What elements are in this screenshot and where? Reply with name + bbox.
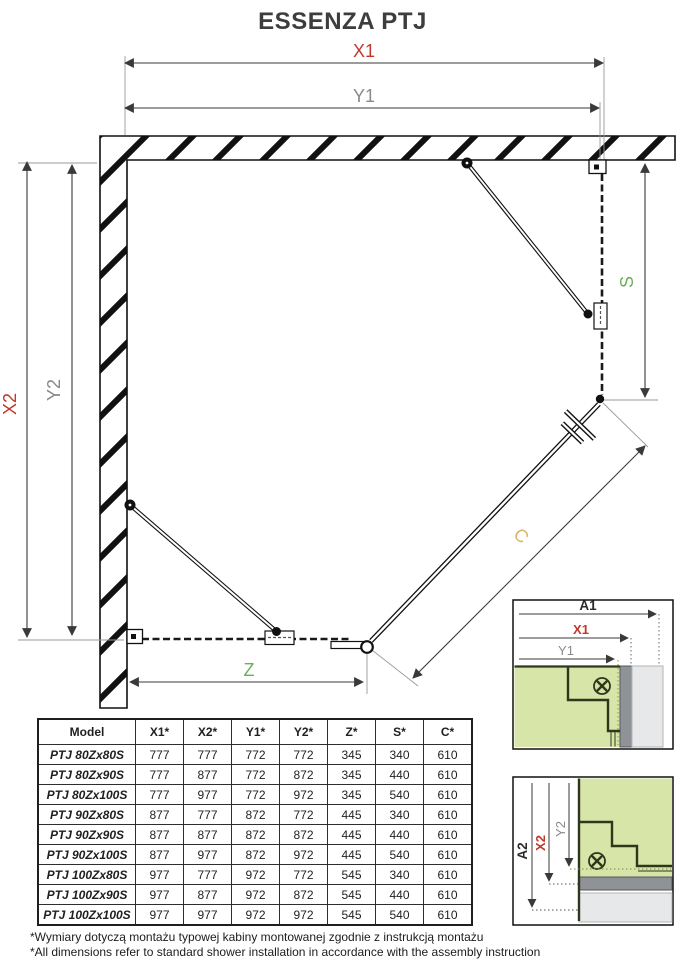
column-header-s: S*	[376, 719, 424, 745]
value-cell: 610	[424, 845, 473, 865]
value-cell: 972	[232, 865, 280, 885]
value-cell: 540	[376, 785, 424, 805]
screw-icon	[594, 678, 610, 694]
value-cell: 872	[280, 825, 328, 845]
value-cell: 772	[280, 865, 328, 885]
value-cell: 977	[136, 905, 184, 926]
value-cell: 877	[136, 825, 184, 845]
detail1-label-y1: Y1	[558, 643, 574, 658]
column-header-x1: X1*	[136, 719, 184, 745]
value-cell: 440	[376, 885, 424, 905]
table-header-row: Model X1* X2* Y1* Y2* Z* S* C*	[38, 719, 472, 745]
model-name: PTJ 90Zx100S	[38, 845, 136, 865]
value-cell: 872	[232, 825, 280, 845]
value-cell: 610	[424, 745, 473, 765]
column-header-z: Z*	[328, 719, 376, 745]
dimension-y2: Y2	[44, 165, 72, 635]
column-header-y1: Y1*	[232, 719, 280, 745]
value-cell: 777	[136, 745, 184, 765]
dimension-s: S	[617, 164, 645, 397]
value-cell: 977	[184, 845, 232, 865]
value-cell: 977	[136, 885, 184, 905]
value-cell: 777	[136, 765, 184, 785]
bottom-panel-z	[127, 630, 363, 649]
dimension-z: Z	[130, 660, 363, 682]
value-cell: 445	[328, 825, 376, 845]
value-cell: 440	[376, 765, 424, 785]
model-name: PTJ 90Zx80S	[38, 805, 136, 825]
dimension-x1: X1	[125, 41, 603, 63]
value-cell: 540	[376, 845, 424, 865]
value-cell: 445	[328, 845, 376, 865]
value-cell: 545	[328, 865, 376, 885]
table-row: PTJ 90Zx80S 877 777 872 772 445 340 610	[38, 805, 472, 825]
table-row: PTJ 90Zx90S 877 877 872 872 445 440 610	[38, 825, 472, 845]
column-header-model: Model	[38, 719, 136, 745]
brace-joint-dot	[272, 627, 281, 636]
value-cell: 972	[280, 845, 328, 865]
value-cell: 340	[376, 865, 424, 885]
table-row: PTJ 90Zx100S 877 977 872 972 445 540 610	[38, 845, 472, 865]
value-cell: 610	[424, 825, 473, 845]
value-cell: 777	[184, 805, 232, 825]
value-cell: 972	[280, 905, 328, 926]
footnote-en: *All dimensions refer to standard shower…	[30, 945, 540, 959]
value-cell: 610	[424, 765, 473, 785]
dim-label-x2: X2	[0, 393, 20, 415]
value-cell: 540	[376, 905, 424, 926]
detail-inset-vertical: A2 X2 Y2	[513, 777, 673, 925]
value-cell: 777	[136, 785, 184, 805]
detail-inset-horizontal: A1 X1 Y1	[513, 598, 673, 749]
value-cell: 345	[328, 785, 376, 805]
value-cell: 972	[232, 905, 280, 926]
value-cell: 872	[280, 885, 328, 905]
value-cell: 610	[424, 865, 473, 885]
value-cell: 877	[184, 765, 232, 785]
dim-label-c: C	[510, 524, 533, 547]
door-top-pivot	[596, 395, 604, 403]
detail2-label-x2: X2	[533, 835, 548, 851]
table-row: PTJ 80Zx90S 777 877 772 872 345 440 610	[38, 765, 472, 785]
detail1-label-a1: A1	[579, 598, 597, 613]
model-name: PTJ 80Zx100S	[38, 785, 136, 805]
screw-icon	[589, 853, 605, 869]
footnote-pl: *Wymiary dotyczą montażu typowej kabiny …	[30, 930, 483, 944]
value-cell: 877	[184, 825, 232, 845]
value-cell: 977	[184, 785, 232, 805]
dim-label-x1: X1	[353, 41, 375, 61]
model-name: PTJ 100Zx100S	[38, 905, 136, 926]
support-brace-top	[462, 158, 593, 319]
detail2-label-a2: A2	[515, 842, 530, 859]
value-cell: 440	[376, 825, 424, 845]
dim-label-s: S	[617, 276, 637, 288]
model-name: PTJ 90Zx90S	[38, 825, 136, 845]
dim-label-y2: Y2	[44, 379, 64, 401]
column-header-y2: Y2*	[280, 719, 328, 745]
detail1-label-x1: X1	[573, 622, 589, 637]
detail2-label-y2: Y2	[553, 821, 568, 837]
value-cell: 445	[328, 805, 376, 825]
value-cell: 872	[232, 805, 280, 825]
value-cell: 877	[184, 885, 232, 905]
value-cell: 545	[328, 885, 376, 905]
table-row: PTJ 80Zx80S 777 777 772 772 345 340 610	[38, 745, 472, 765]
model-name: PTJ 80Zx90S	[38, 765, 136, 785]
value-cell: 610	[424, 785, 473, 805]
table-row: PTJ 100Zx90S 977 877 972 872 545 440 610	[38, 885, 472, 905]
table-row: PTJ 100Zx100S 977 977 972 972 545 540 61…	[38, 905, 472, 926]
table-row: PTJ 80Zx100S 777 977 772 972 345 540 610	[38, 785, 472, 805]
value-cell: 872	[280, 765, 328, 785]
value-cell: 610	[424, 905, 473, 926]
model-name: PTJ 80Zx80S	[38, 745, 136, 765]
value-cell: 777	[184, 865, 232, 885]
door-bottom-pivot	[361, 641, 373, 653]
value-cell: 772	[280, 805, 328, 825]
value-cell: 972	[232, 885, 280, 905]
brace-joint-dot	[584, 310, 593, 319]
table-row: PTJ 100Zx80S 977 777 972 772 545 340 610	[38, 865, 472, 885]
support-brace-left	[125, 500, 282, 637]
value-cell: 610	[424, 805, 473, 825]
column-header-x2: X2*	[184, 719, 232, 745]
value-cell: 545	[328, 905, 376, 926]
value-cell: 340	[376, 745, 424, 765]
dimension-x2: X2	[0, 162, 27, 637]
column-header-c: C*	[424, 719, 473, 745]
value-cell: 977	[136, 865, 184, 885]
value-cell: 772	[280, 745, 328, 765]
value-cell: 772	[232, 785, 280, 805]
dimension-sheet: ESSENZA PTJ	[0, 0, 685, 970]
value-cell: 977	[184, 905, 232, 926]
dimension-y1: Y1	[125, 86, 599, 108]
value-cell: 340	[376, 805, 424, 825]
value-cell: 872	[232, 845, 280, 865]
model-name: PTJ 100Zx90S	[38, 885, 136, 905]
value-cell: 877	[136, 805, 184, 825]
value-cell: 345	[328, 765, 376, 785]
value-cell: 777	[184, 745, 232, 765]
side-panel-s	[589, 160, 607, 395]
dim-label-y1: Y1	[353, 86, 375, 106]
value-cell: 772	[232, 765, 280, 785]
value-cell: 972	[280, 785, 328, 805]
value-cell: 610	[424, 885, 473, 905]
value-cell: 877	[136, 845, 184, 865]
model-name: PTJ 100Zx80S	[38, 865, 136, 885]
dimensions-table: Model X1* X2* Y1* Y2* Z* S* C* PTJ 80Zx8…	[37, 718, 473, 926]
value-cell: 772	[232, 745, 280, 765]
dim-label-z: Z	[244, 660, 255, 680]
value-cell: 345	[328, 745, 376, 765]
